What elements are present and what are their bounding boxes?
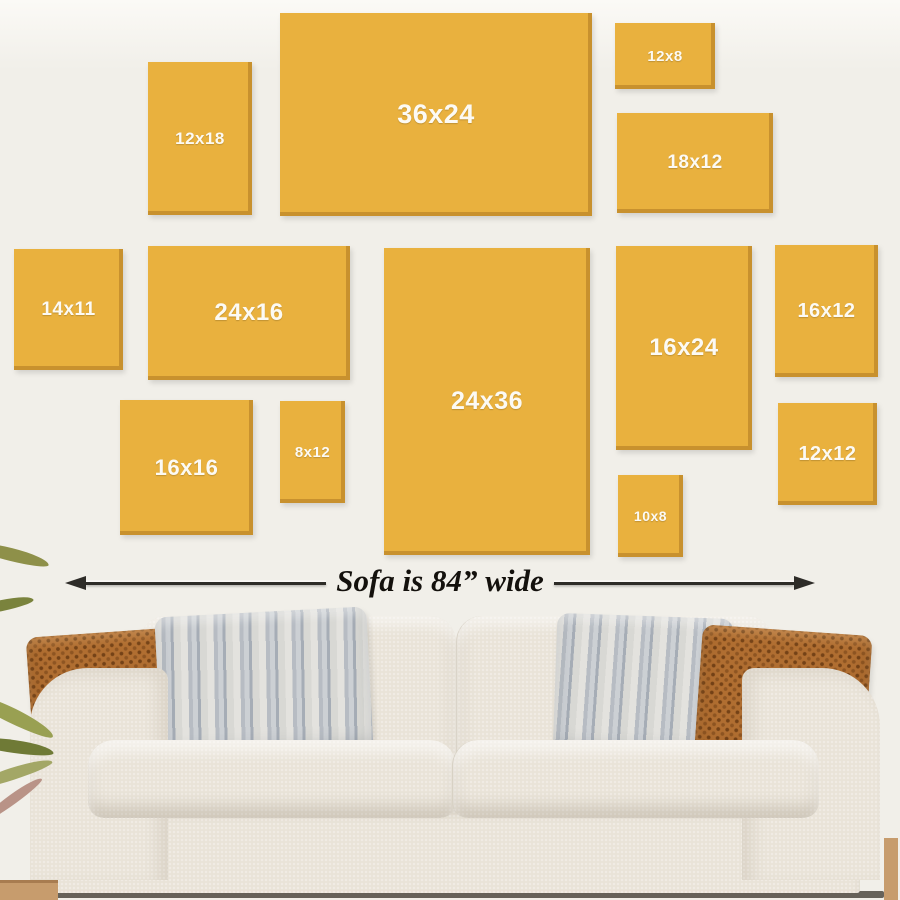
frame-size-label: 16x16 [155,455,219,481]
frame-tile-12x18: 12x18 [148,62,252,215]
frame-tile-14x11: 14x11 [14,249,123,370]
sofa-width-dimension: Sofa is 84” wide [65,564,815,602]
plant-leaf [0,539,50,570]
frame-tile-36x24: 36x24 [280,13,592,216]
frame-tile-10x8: 10x8 [618,475,683,557]
frame-tile-12x12: 12x12 [778,403,877,505]
arrow-right-icon [794,576,815,590]
frame-tile-8x12: 8x12 [280,401,345,503]
wall-art-size-guide-scene: 12x18 36x24 12x8 18x12 14x11 24x16 24x36… [0,0,900,900]
sofa-width-label: Sofa is 84” wide [326,563,554,599]
frame-size-label: 24x16 [214,299,283,327]
frame-tile-24x16: 24x16 [148,246,350,380]
frame-size-label: 36x24 [397,99,475,130]
wood-table-edge [0,880,58,900]
frame-size-label: 8x12 [295,444,330,461]
frame-tile-16x16: 16x16 [120,400,253,535]
frame-size-label: 16x24 [649,334,718,362]
frame-size-label: 12x12 [798,443,856,466]
frame-size-label: 12x18 [175,129,225,149]
frame-size-label: 18x12 [667,152,722,174]
frame-tile-24x36: 24x36 [384,248,590,555]
frame-tile-16x12: 16x12 [775,245,878,377]
dimension-line-left [86,582,326,585]
frame-size-label: 24x36 [451,387,523,416]
sofa-seat-cushion-right [452,740,819,818]
frame-tile-16x24: 16x24 [616,246,752,450]
wood-leg [884,838,898,900]
frame-tile-18x12: 18x12 [617,113,773,213]
sofa-base-skirt [48,806,860,893]
sofa-seat-cushion-left [88,740,456,818]
frame-tile-12x8: 12x8 [615,23,715,89]
arrow-left-icon [65,576,86,590]
frame-size-label: 10x8 [634,508,667,524]
plant-leaf [0,593,34,617]
frame-size-label: 14x11 [41,299,95,321]
dimension-line-right [554,582,794,585]
frame-size-label: 12x8 [647,48,682,65]
frame-size-label: 16x12 [797,300,855,323]
